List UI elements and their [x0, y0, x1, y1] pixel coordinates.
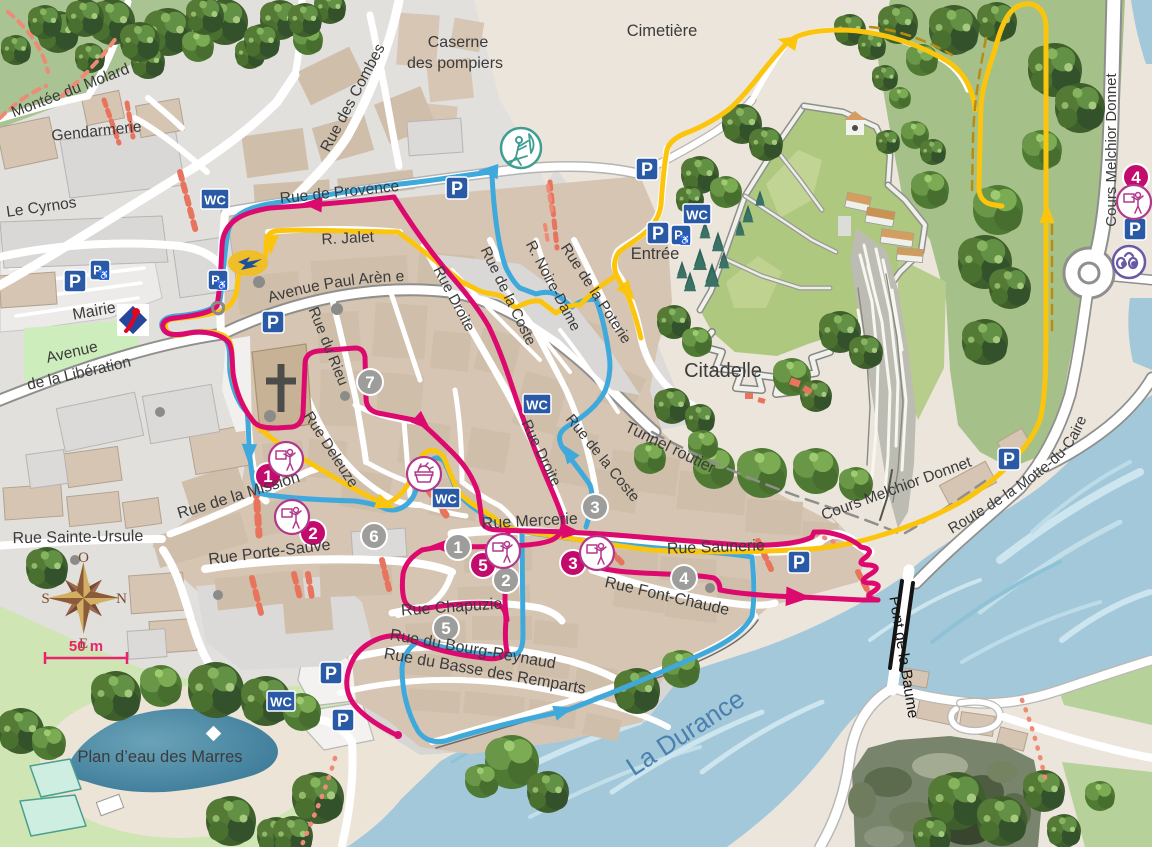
svg-text:Plan d’eau des Marres: Plan d’eau des Marres: [77, 748, 242, 766]
svg-text:2: 2: [501, 571, 510, 590]
svg-text:50 m: 50 m: [69, 638, 103, 655]
svg-text:Rue Sainte-Ursule: Rue Sainte-Ursule: [12, 528, 143, 547]
svg-text:Rue Saunerie: Rue Saunerie: [667, 537, 765, 557]
svg-text:S: S: [41, 591, 49, 607]
svg-text:Cimetière: Cimetière: [627, 22, 698, 40]
svg-text:Citadelle: Citadelle: [684, 360, 762, 382]
svg-text:N: N: [116, 591, 127, 607]
svg-text:Entrée: Entrée: [631, 245, 680, 263]
svg-text:Caserne: Caserne: [428, 34, 489, 51]
svg-text:4: 4: [679, 569, 689, 588]
svg-text:R. Jalet: R. Jalet: [321, 229, 375, 249]
svg-text:1: 1: [453, 538, 462, 557]
svg-text:6: 6: [369, 527, 378, 546]
svg-text:7: 7: [365, 373, 374, 392]
svg-text:3: 3: [590, 498, 599, 517]
svg-text:3: 3: [568, 554, 577, 573]
svg-text:Cours Melchior Donnet: Cours Melchior Donnet: [1103, 72, 1120, 226]
svg-text:O: O: [78, 550, 89, 566]
svg-text:5: 5: [478, 556, 487, 575]
svg-text:des pompiers: des pompiers: [407, 55, 503, 72]
